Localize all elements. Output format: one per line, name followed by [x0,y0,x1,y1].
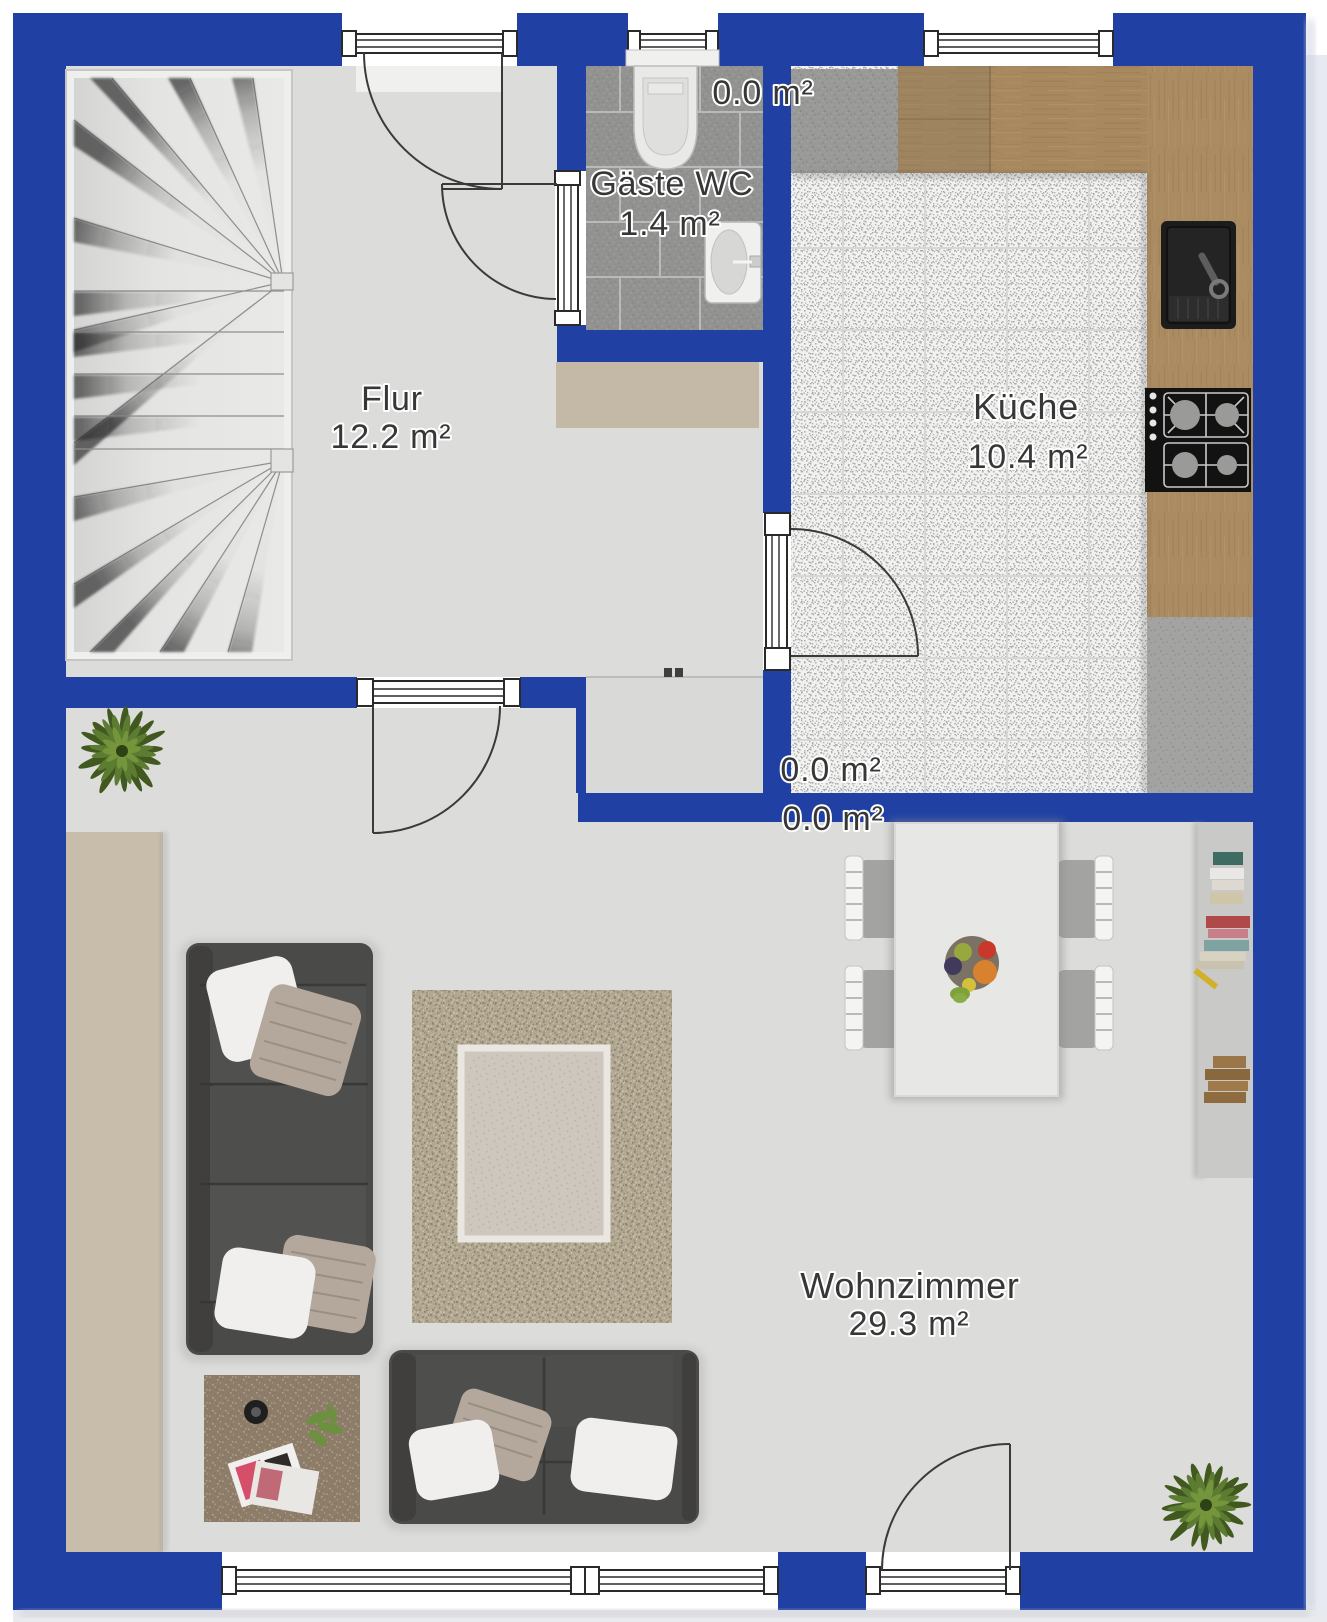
svg-text:10.4 m²: 10.4 m² [968,438,1089,476]
svg-text:Küche: Küche [973,386,1079,427]
svg-text:0.0 m²: 0.0 m² [712,74,813,112]
svg-text:Gäste WC: Gäste WC [590,165,753,203]
svg-text:12.2 m²: 12.2 m² [331,418,452,456]
svg-text:0.0 m²: 0.0 m² [782,800,883,838]
svg-text:29.3 m²: 29.3 m² [849,1305,970,1343]
svg-text:Wohnzimmer: Wohnzimmer [800,1265,1019,1306]
svg-text:0.0 m²: 0.0 m² [780,751,881,789]
svg-text:Flur: Flur [361,380,423,418]
svg-text:1.4 m²: 1.4 m² [619,205,720,243]
